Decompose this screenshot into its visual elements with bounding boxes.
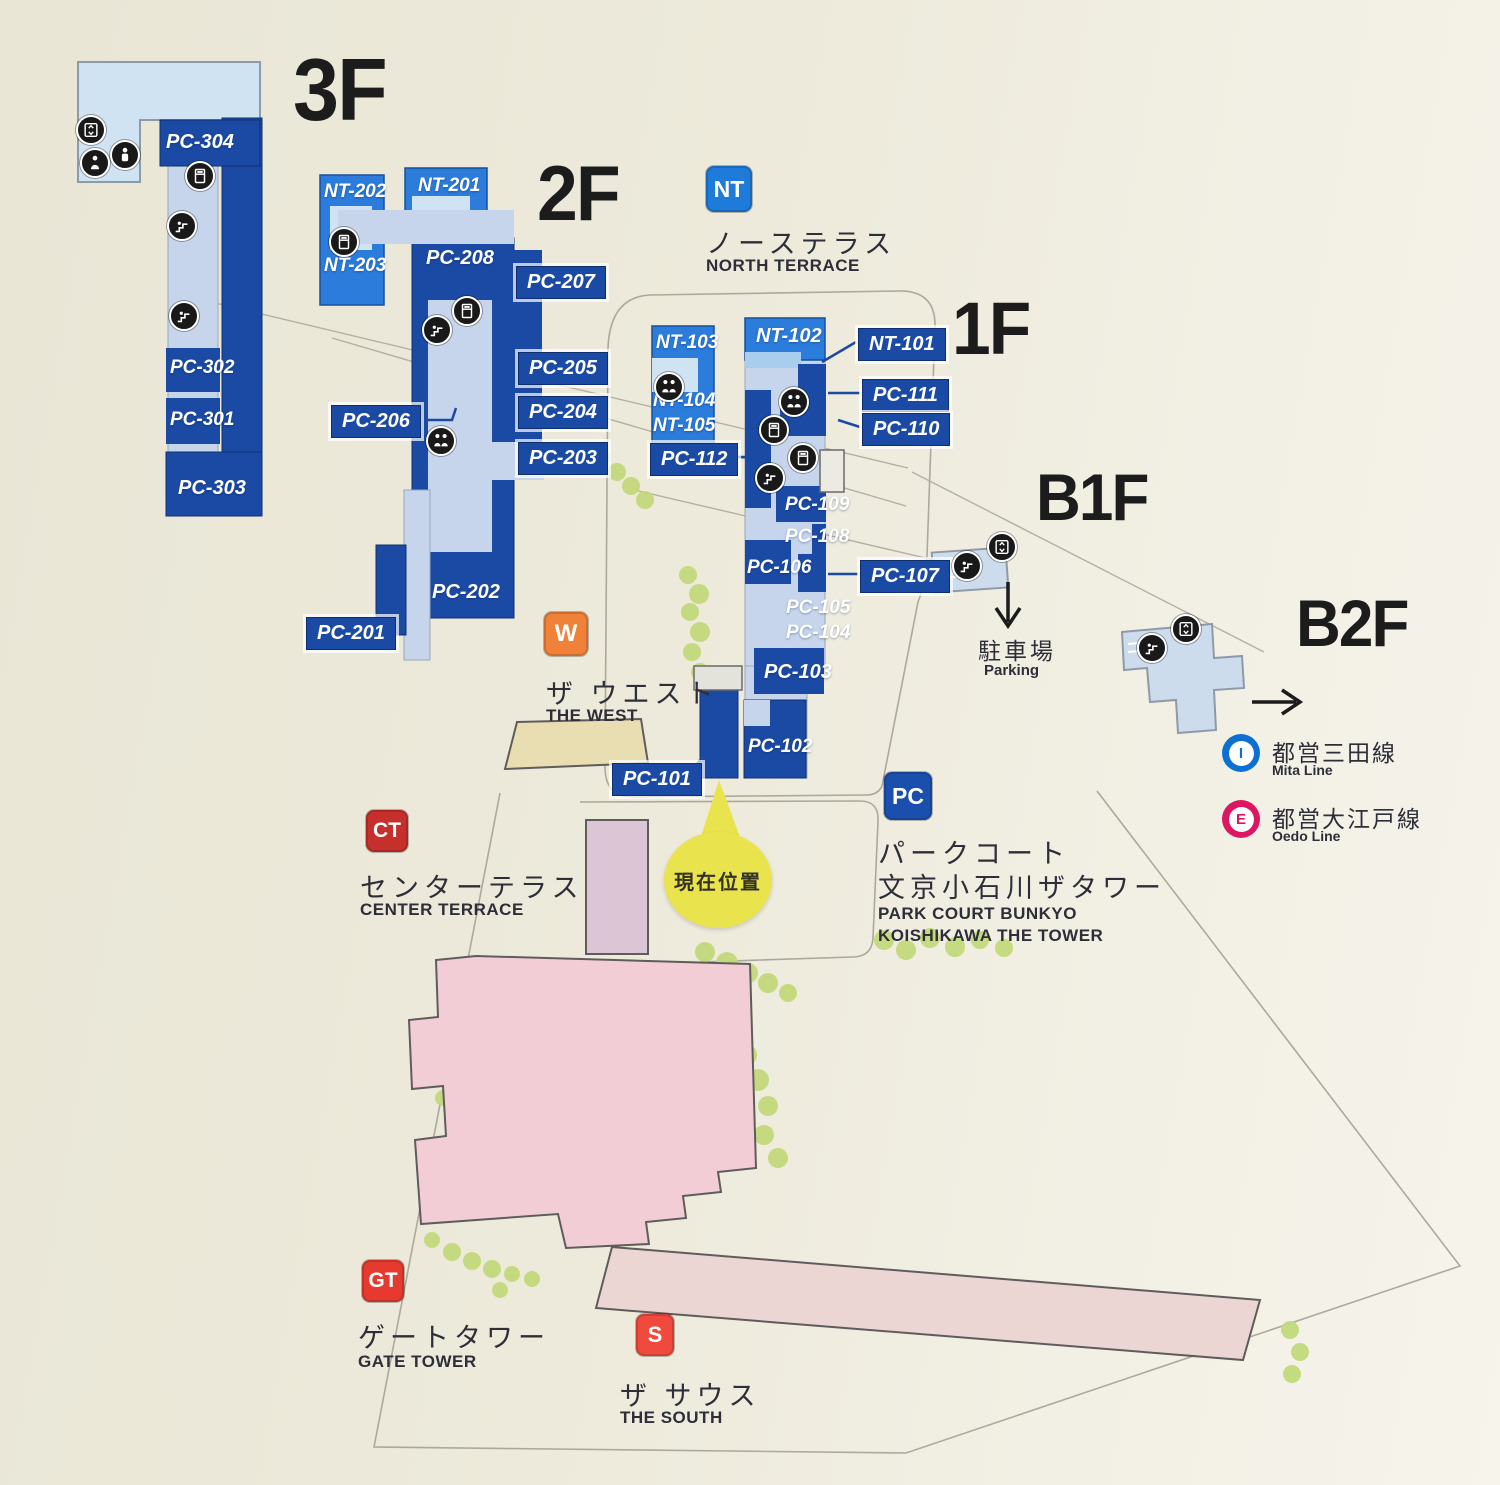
restroom-icon [779,387,809,417]
chip-nt101: NT-101 [858,328,946,361]
map-label-pc304: PC-304 [166,132,234,152]
floor-label-2f: 2F [537,154,619,232]
mita-line-symbol: I [1222,734,1260,772]
legend-pc-name-jp-line2: 文京小石川ザタワー [878,866,1166,905]
floor-label-1f: 1F [952,292,1029,366]
building-the-south-footprint [596,1247,1260,1360]
elevator-icon [76,115,106,145]
legend-ct-badge: CT [366,810,408,852]
building-the-west-footprint [505,719,648,769]
chip-pc111: PC-111 [862,379,949,412]
escalator-icon [169,301,199,331]
parking-label-jp: 駐車場 [978,632,1056,666]
escalator-icon [952,551,982,581]
map-label-pc105: PC-105 [786,598,850,617]
chip-pc112: PC-112 [650,443,738,476]
toilet-female-icon [80,148,110,178]
map-label-nt105: NT-105 [653,416,715,435]
legend-s-name-en: THE SOUTH [620,1408,723,1428]
map-label-pc302: PC-302 [170,358,234,377]
map-label-pc301: PC-301 [170,410,234,429]
legend-pc-name-en-line2: KOISHIKAWA THE TOWER [878,926,1103,946]
legend-s-badge: S [636,1314,674,1356]
chip-pc207: PC-207 [516,266,606,299]
oedo-line-name-en: Oedo Line [1272,828,1340,844]
legend-pc-badge: PC [884,772,932,820]
legend-w-name-en: THE WEST [546,706,638,726]
legend-pc-name-en-line1: PARK COURT BUNKYO [878,904,1077,924]
elevator-icon [987,532,1017,562]
chip-pc206: PC-206 [331,405,421,438]
escalator-icon [1137,633,1167,663]
chip-pc201: PC-201 [306,617,396,650]
chip-pc101: PC-101 [612,763,702,796]
legend-gt-name-en: GATE TOWER [358,1352,477,1372]
oedo-line-symbol: E [1222,800,1260,838]
floor-label-b1f: B1F [1036,464,1148,530]
vending-machine-icon [185,161,215,191]
chip-pc110: PC-110 [862,413,950,446]
floor-label-3f: 3F [293,46,386,134]
map-label-pc303: PC-303 [178,478,246,498]
other-buildings [409,719,1260,1360]
map-label-pc208: PC-208 [426,248,494,268]
vending-machine-icon [759,415,789,445]
toilet-male-icon [110,140,140,170]
elevator-icon [1171,614,1201,644]
legend-nt-name-en: NORTH TERRACE [706,256,860,276]
map-label-pc103: PC-103 [764,662,832,682]
vending-machine-icon [452,296,482,326]
restroom-icon [426,426,456,456]
legend-w-badge: W [544,612,588,656]
chip-pc203: PC-203 [518,442,608,475]
legend-gt-name-jp: ゲートタワー [358,1316,550,1355]
mita-line-name-en: Mita Line [1272,762,1333,778]
building-gate-tower-footprint [409,956,756,1248]
escalator-icon [755,463,785,493]
floor-label-b2f: B2F [1296,590,1408,656]
escalator-icon [167,211,197,241]
map-label-nt203: NT-203 [324,256,386,275]
escalator-icon [422,315,452,345]
map-label-pc108: PC-108 [785,527,849,546]
map-label-pc104: PC-104 [786,623,850,642]
map-label-pc102: PC-102 [748,737,812,756]
map-label-nt102: NT-102 [756,326,822,346]
map-label-nt202: NT-202 [324,182,386,201]
map-label-nt201: NT-201 [418,176,480,195]
floor-guide-map: 3F 2F 1F B1F B2F PC-304 PC-302 PC-301 PC… [0,0,1500,1485]
legend-gt-badge: GT [362,1260,404,1302]
map-label-nt103: NT-103 [656,333,718,352]
legend-nt-badge: NT [706,166,752,212]
map-label-pc202: PC-202 [432,582,500,602]
map-label-pc106: PC-106 [747,558,811,577]
legend-ct-name-en: CENTER TERRACE [360,900,524,920]
parking-label-en: Parking [984,662,1039,679]
restroom-icon [654,372,684,402]
vending-machine-icon [329,227,359,257]
chip-pc204: PC-204 [518,396,608,429]
chip-pc107: PC-107 [860,560,950,593]
building-small-pink [586,820,648,954]
current-position-label: 現在位置 [674,866,762,895]
current-position-balloon: 現在位置 [664,832,772,928]
chip-pc205: PC-205 [518,352,608,385]
elevator-shaft-box [820,450,844,492]
map-label-pc109: PC-109 [785,495,849,514]
vending-machine-icon [788,443,818,473]
